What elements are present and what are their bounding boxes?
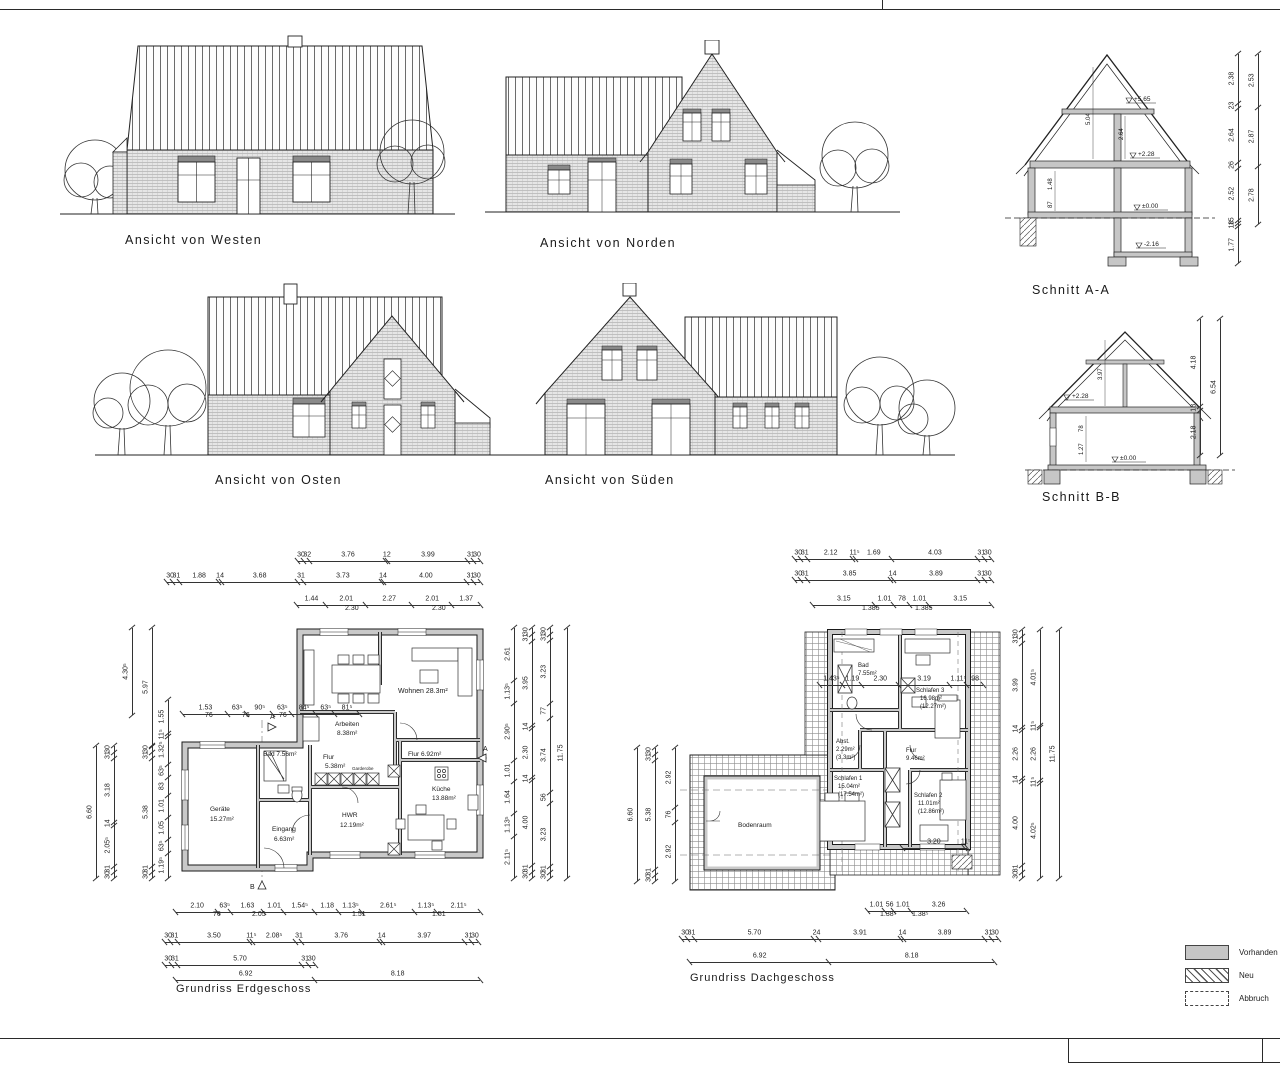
window — [293, 156, 330, 202]
room-flur: Flur — [906, 748, 916, 754]
og-dim-inner: 1.43⁵1.192.303.191.11⁵98 — [820, 675, 983, 686]
eg-dim-top3: 1.442.012.272.011.37 — [297, 595, 480, 606]
og-dim-right1: 30314.00142.26143.993130 — [1012, 630, 1023, 878]
room-bodenraum: Bodenraum — [738, 822, 772, 829]
floorplan-og-drawing: Bodenraum Bad 7.55m² Schlafen 3 16.98m² … — [620, 625, 1020, 893]
room-schlafen1: Schlafen 1 — [834, 776, 863, 782]
room-schlafen3-area: 16.98m² — [920, 696, 942, 702]
chimney — [288, 36, 302, 47]
room-eingang: Eingang — [272, 826, 296, 833]
titleblock-line — [1068, 1062, 1280, 1063]
dim-segment: 6.54 — [1212, 319, 1221, 455]
room-geraete-area: 15.27m² — [210, 816, 235, 823]
sheet-border-top — [0, 9, 1280, 10]
house-roof — [127, 46, 433, 150]
dim-segment: 4.02⁵ — [1032, 783, 1041, 878]
dim-segment: 3.74 — [542, 718, 551, 791]
dim-segment: 30 — [474, 553, 480, 562]
internal-dim: 87 — [1048, 201, 1054, 208]
level-ground: ±0.00 — [1142, 203, 1159, 210]
door — [588, 158, 616, 212]
dim-segment: 4.03 — [892, 551, 978, 560]
dim-segment: 2.18 — [1192, 410, 1201, 455]
legend-item-neu: Neu — [1185, 968, 1254, 983]
room-kueche-area: 13.88m² — [432, 795, 457, 802]
tree — [844, 357, 955, 455]
dim-segment: 5.70 — [178, 957, 302, 966]
dim-segment: 6.92 — [176, 972, 315, 981]
dim-segment: 4.00 — [1014, 781, 1023, 865]
dim-segment: 1.69 — [856, 551, 892, 560]
internal-dim: 1.27 — [1079, 443, 1085, 455]
dim-segment: 2.27 — [366, 597, 412, 606]
og-dim-top2: 30313.85143.893130 — [795, 570, 991, 581]
dim-segment: 6.92 — [690, 954, 829, 963]
elevation-south-label: Ansicht von Süden — [545, 473, 675, 487]
og-dim-top1: 30312.1211⁵1.694.033130 — [795, 549, 991, 560]
dim-segment: 30 — [542, 628, 551, 634]
dim-segment: 2.08⁵ — [253, 934, 296, 943]
ceiling-slab — [1050, 407, 1200, 413]
room-garderobe: Garderobe — [352, 766, 374, 771]
floorplan-og-label: Grundriss Dachgeschoss — [690, 972, 835, 984]
legend-item-abbruch: Abbruch — [1185, 991, 1269, 1006]
dim-segment: 2.53 — [1250, 54, 1259, 107]
dim-segment: 1.77 — [1230, 226, 1239, 263]
eg-dim-left3b: 5.97 — [142, 628, 153, 746]
upper-door — [384, 359, 401, 399]
titleblock-divider — [1068, 1038, 1069, 1062]
eg-dim-bottom2: 30313.5011⁵2.08⁵313.76143.973130 — [165, 932, 478, 943]
og-dim-bottom3: 6.928.18 — [690, 952, 994, 963]
dim-segment: 3.23 — [542, 803, 551, 866]
og-dim-top3: 3.151.01781.013.15 — [813, 595, 991, 606]
sheet-fold-mark — [882, 0, 883, 9]
eg-dim-right-detail: 2.11⁵1.13⁵1.641.012.90⁵1.13⁵2.61 — [504, 628, 515, 878]
eg-dim-top1: 30323.76123.993130 — [298, 551, 480, 562]
window — [421, 402, 435, 428]
eg-dim-sub: 2.05 — [252, 911, 266, 918]
dim-segment: 3.99 — [1014, 643, 1023, 727]
section-aa-dim-chain-outer: 2.782.872.53 — [1248, 54, 1259, 224]
legend-label-new: Neu — [1239, 971, 1254, 980]
room-schlafen2: Schlafen 2 — [914, 793, 943, 799]
elevation-east-label: Ansicht von Osten — [215, 473, 342, 487]
eg-dim-sub: 1.51 — [432, 911, 446, 918]
dim-segment: 2.92 — [667, 822, 676, 881]
dim-segment: 3.76 — [310, 553, 385, 562]
floor-slab — [1028, 212, 1192, 218]
legend-label-demolition: Abbruch — [1239, 994, 1269, 1003]
dim-segment: 2.38 — [1230, 54, 1239, 103]
room-bad: Bad — [858, 663, 869, 669]
window — [352, 402, 366, 428]
dim-segment: 98 — [967, 677, 983, 686]
dim-segment: 30 — [524, 628, 533, 634]
section-bb-drawing: +2.28 ±0.00 3.97 78 1.27 — [1020, 310, 1240, 490]
dim-segment: 30 — [474, 574, 480, 583]
chimney — [705, 40, 719, 54]
dim-segment: 6.60 — [88, 746, 97, 878]
dim-segment: 8.18 — [829, 954, 994, 963]
footings — [1028, 470, 1222, 484]
dim-segment: 3.20 — [903, 840, 965, 849]
room-eingang-area: 6.63m² — [274, 836, 295, 843]
og-dim-sub: 1.38⁵ — [880, 911, 897, 918]
window — [293, 398, 325, 437]
dim-segment: 3.76 — [302, 934, 380, 943]
french-door — [652, 399, 690, 455]
eg-dim-sub: 2.30 — [432, 605, 446, 612]
floorplan-eg-drawing: Wohnen 28.3m² Arbeiten 8.38m² Flur 6.92m… — [180, 625, 490, 897]
dim-segment: 6.60 — [629, 748, 638, 881]
dim-segment: 3.99 — [388, 553, 468, 562]
dim-segment: 3.91 — [819, 931, 901, 940]
window — [683, 109, 701, 141]
dim-segment: 2.87 — [1250, 107, 1259, 167]
dim-segment: 5.97 — [144, 628, 153, 746]
section-aa-dim-chain-inner: 1.7718152.52262.64232.38 — [1228, 54, 1239, 263]
dim-segment: 3.19 — [899, 677, 950, 686]
internal-dim: 3.97 — [1098, 368, 1104, 380]
legend-swatch-new — [1185, 968, 1229, 983]
dim-segment: 3.97 — [383, 934, 465, 943]
lower-door — [384, 405, 401, 455]
roof-lines — [1016, 55, 1199, 176]
level-marker-ground: ±0.00 — [1112, 455, 1146, 462]
door — [237, 158, 260, 214]
eg-dim-right3: 30313.23563.74773.233130 — [540, 628, 551, 878]
eg-dim-right2: 30314.00142.30143.953130 — [522, 628, 533, 878]
room-schlafen2-area2: (12.86m²) — [918, 809, 944, 815]
eg-dim-left-detail: 1.19⁵63⁵1.051.018363⁵1.32⁵11⁵1.55 — [158, 700, 169, 878]
dim-segment: 81⁵ — [335, 706, 359, 715]
window — [765, 403, 779, 428]
room-schlafen1-area2: (17.54m²) — [838, 792, 864, 798]
legend-label-existing: Vorhanden — [1239, 948, 1278, 957]
dim-segment: 11⁵ — [965, 840, 967, 849]
tree — [93, 350, 206, 455]
og-dim-sub: 1.385 — [862, 605, 880, 612]
room-schlafen3-area2: (12.27m²) — [920, 704, 946, 710]
dim-segment: 1.88 — [180, 574, 219, 583]
eg-dim-top2: 30311.88143.68313.73144.003130 — [167, 572, 480, 583]
dim-segment: 30 — [106, 746, 115, 752]
dim-segment: 2.92 — [667, 748, 676, 807]
elevation-south-drawing — [495, 283, 965, 468]
level-marker-ground: ±0.00 — [1134, 203, 1168, 210]
dim-segment: 30 — [985, 551, 991, 560]
dim-segment: 4.01⁵ — [1032, 630, 1041, 725]
room-arbeiten: Arbeiten — [335, 721, 360, 728]
dim-segment: 3.89 — [904, 931, 985, 940]
internal-dim: 1.48 — [1048, 178, 1054, 190]
dim-segment: 30 — [472, 934, 478, 943]
window — [745, 159, 767, 194]
room-arbeiten-area: 8.38m² — [337, 730, 358, 737]
eg-dim-sub: 2.30 — [345, 605, 359, 612]
window — [670, 159, 692, 194]
window — [548, 165, 570, 194]
room-schlafen2-area: 11.01m² — [918, 801, 940, 807]
window — [602, 346, 622, 380]
drawing-sheet: Ansicht von Westen — [0, 0, 1280, 1071]
room-schlafen1-area: 15.04m² — [838, 784, 860, 790]
dim-segment: 1.37 — [452, 597, 480, 606]
eg-dim-left3: 30315.383130 — [142, 746, 153, 878]
dim-segment: 11.75 — [1051, 630, 1060, 878]
level-ridge: +5.65 — [1134, 96, 1151, 103]
dim-segment: 2.52 — [1230, 168, 1239, 220]
dim-segment: 4.30⁵ — [124, 628, 133, 715]
dim-segment: 30 — [985, 572, 991, 581]
window — [733, 403, 747, 428]
dim-segment: 2.61 — [506, 628, 515, 680]
level-marker-ridge: +5.65 — [1126, 96, 1156, 103]
internal-dim: 5.04 — [1086, 113, 1092, 125]
dim-segment: 11.75 — [559, 628, 568, 878]
eg-dim-left4: 4.30⁵ — [122, 628, 133, 715]
dim-segment: 2.05⁵ — [106, 825, 115, 866]
eg-dim-left1: 6.60 — [86, 746, 97, 878]
og-dim-left2: 30315.383130 — [645, 748, 656, 881]
eg-dim-bottom3: 30315.703130 — [165, 955, 315, 966]
room-wohnen: Wohnen 28.3m² — [398, 688, 448, 695]
eg-dim-sub: 76 — [213, 911, 221, 918]
room-flur-klein: Flur — [323, 754, 335, 761]
room-flur-klein-area: 5.38m² — [325, 763, 346, 770]
eg-dim-sub: 76 — [242, 712, 250, 719]
level-marker-basement: -2.16 — [1136, 241, 1166, 248]
window — [712, 109, 730, 141]
level-upper: +2.28 — [1138, 151, 1155, 158]
internal-dim: 2.64 — [1119, 128, 1125, 140]
dim-segment: 8.18 — [315, 972, 480, 981]
window — [178, 156, 215, 202]
dim-segment: 5.38 — [647, 760, 656, 868]
section-bb-dim-chain-inner: 2.18184.18 — [1190, 319, 1201, 455]
section-bb-dim-chain-outer: 6.54 — [1210, 319, 1221, 455]
dim-segment: 4.00 — [524, 780, 533, 865]
dim-segment: 3.85 — [808, 572, 891, 581]
og-dim-sub: 1.38⁵ — [912, 911, 929, 918]
section-aa-label: Schnitt A-A — [1032, 283, 1110, 297]
dim-segment: 30 — [309, 957, 316, 966]
elevation-east-drawing — [90, 283, 510, 468]
dim-segment: 2.30 — [862, 677, 899, 686]
dim-segment: 1.32⁵ — [160, 736, 169, 764]
og-dim-inner2: 3.2011⁵ — [903, 838, 967, 849]
og-dim-bottom2: 30315.70243.91143.893130 — [682, 929, 998, 940]
eg-dim-sub: 76 — [205, 712, 213, 719]
eg-dim-right4: 11.75 — [557, 628, 568, 878]
dim-segment: 2.26 — [1014, 730, 1023, 778]
level-upper: +2.28 — [1072, 393, 1089, 400]
ground-line — [1005, 218, 1215, 246]
dim-segment: 3.95 — [524, 641, 533, 725]
dim-segment: 3.23 — [542, 640, 551, 703]
og-dim-sub: 1.385 — [915, 605, 933, 612]
dim-segment: 2.26 — [1032, 727, 1041, 780]
legend-item-vorhanden: Vorhanden — [1185, 945, 1278, 960]
dim-segment: 2.64 — [1230, 108, 1239, 162]
elevation-north-drawing — [480, 40, 910, 220]
dim-segment: 30 — [992, 931, 998, 940]
ceiling-slab — [1030, 161, 1190, 168]
dim-segment: 3.15 — [929, 597, 991, 606]
dim-segment: 3.18 — [106, 758, 115, 822]
dim-segment: 2.12 — [808, 551, 853, 560]
eg-dim-sub: 1.51 — [352, 911, 366, 918]
level-ground: ±0.00 — [1120, 455, 1137, 462]
room-abst-area: 2.29m² — [836, 747, 855, 753]
section-marker-b: B — [250, 884, 255, 891]
room-hwr-area: 12.19m² — [340, 822, 365, 829]
dim-segment: 5.38 — [144, 758, 153, 866]
internal-dims: 5.04 2.64 1.48 87 — [1048, 67, 1125, 211]
room-kueche: Küche — [432, 786, 451, 793]
og-dim-left3: 2.92762.92 — [665, 748, 676, 881]
elevation-west-drawing — [55, 30, 465, 226]
room-flur-area: 9.46m² — [906, 756, 925, 762]
dim-segment: 2.61⁵ — [362, 904, 415, 913]
room-hwr: HWR — [342, 812, 358, 819]
french-door — [567, 399, 605, 455]
dim-segment: 3.89 — [894, 572, 978, 581]
room-schlafen3: Schlafen 3 — [916, 688, 945, 694]
dim-segment: 1.64 — [506, 781, 515, 814]
titleblock-right-edge — [1262, 1038, 1263, 1062]
dim-segment: 1.55 — [160, 700, 169, 733]
room-abst: Abst. — [836, 739, 850, 745]
room-bad: Bad 7.56m² — [263, 751, 297, 758]
window — [795, 403, 809, 428]
eg-dim-left2: 30312.05⁵143.183130 — [104, 746, 115, 878]
section-marker-a: A — [483, 746, 488, 753]
room-abst-area2: (3.3m²) — [836, 755, 855, 761]
section-bb-label: Schnitt B-B — [1042, 490, 1121, 504]
dim-segment: 3.50 — [178, 934, 251, 943]
og-dim-right2: 4.02⁵11⁵2.2611⁵4.01⁵ — [1030, 630, 1041, 878]
chimney — [284, 284, 297, 304]
dim-segment: 3.68 — [222, 574, 298, 583]
internal-dims: 3.97 78 1.27 — [1079, 340, 1105, 462]
eg-dim-bottom4: 6.928.18 — [176, 970, 480, 981]
floor-slab — [1048, 465, 1206, 470]
room-geraete: Geräte — [210, 806, 230, 813]
desk — [303, 717, 319, 741]
dim-segment: 3.73 — [304, 574, 381, 583]
dim-segment: 2.10 — [176, 904, 218, 913]
dim-segment: 4.18 — [1192, 319, 1201, 406]
tree — [820, 122, 889, 212]
room-flur: Flur 6.92m² — [408, 751, 442, 758]
level-basement: -2.16 — [1144, 241, 1159, 248]
eg-dim-sub: 76 — [279, 712, 287, 719]
dim-segment: 2.90⁵ — [506, 703, 515, 761]
internal-dim: 78 — [1079, 425, 1085, 432]
dim-segment: 2.30 — [524, 728, 533, 777]
dim-segment: 4.00 — [384, 574, 467, 583]
dim-segment: 2.78 — [1250, 166, 1259, 224]
elevation-west-label: Ansicht von Westen — [125, 233, 262, 247]
og-dim-left1: 6.60 — [627, 748, 638, 881]
level-marker-upper: +2.28 — [1130, 151, 1160, 158]
legend-swatch-demolition — [1185, 991, 1229, 1006]
legend-swatch-existing — [1185, 945, 1229, 960]
og-dim-right3: 11.75 — [1049, 630, 1060, 878]
elevation-north-label: Ansicht von Norden — [540, 236, 676, 250]
chimney — [623, 283, 636, 296]
dim-segment: 30 — [647, 748, 656, 754]
window — [637, 346, 657, 380]
dim-segment: 2.11⁵ — [506, 836, 515, 878]
sheet-border-bottom — [0, 1038, 1280, 1039]
floorplan-eg-label: Grundriss Erdgeschoss — [176, 983, 311, 995]
dim-segment: 5.70 — [695, 931, 814, 940]
dim-segment: 30 — [1014, 630, 1023, 636]
